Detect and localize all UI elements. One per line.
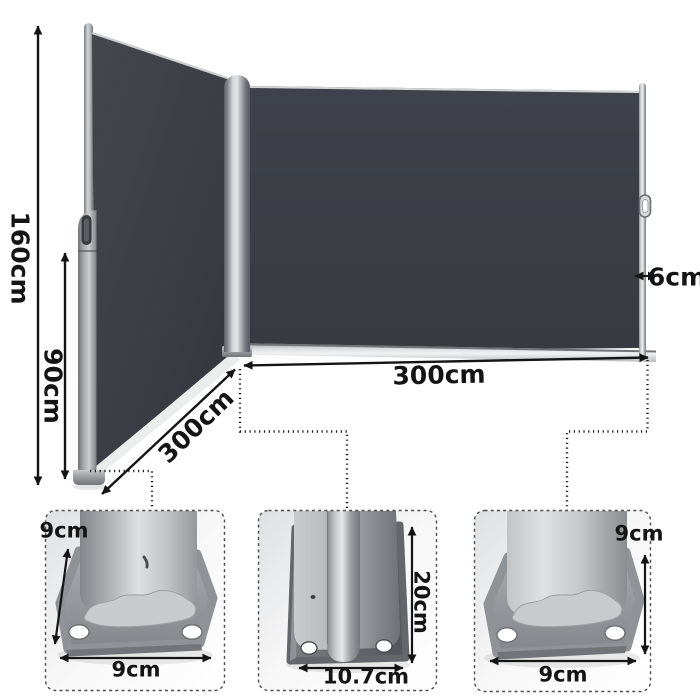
leader-right: [567, 360, 648, 509]
center-base-hole: [301, 642, 317, 654]
right-awning-panel: [250, 86, 639, 352]
retracted-height-label: 90cm: [41, 348, 66, 424]
right-base-height-label: 9cm: [615, 524, 664, 545]
awning-illustration: [73, 23, 656, 490]
awning-dimension-figure: 160cm 90cm 300cm 300cm 6cm 9cm 9cm 20cm …: [0, 0, 700, 700]
left-base-hole: [69, 625, 89, 639]
center-base-width-label: 10.7cm: [323, 667, 409, 688]
left-pull-rod: [84, 23, 93, 216]
left-cassette-pole: [78, 250, 97, 473]
right-pole: [639, 83, 646, 358]
right-panel-length-label: 300cm: [392, 362, 486, 389]
total-height-label: 160cm: [8, 211, 33, 304]
right-pull-handle-hole: [643, 200, 649, 213]
center-pole: [224, 75, 250, 352]
diagram-canvas: [0, 0, 700, 700]
leader-center: [240, 369, 347, 509]
pole-width-label: 6cm: [648, 265, 700, 290]
left-base-depth-label: 9cm: [40, 521, 89, 542]
center-base-height-label: 20cm: [411, 570, 432, 634]
left-foot: [73, 470, 105, 485]
center-base-ridge: [327, 511, 360, 662]
left-handle-grip: [84, 219, 89, 242]
right-base-hole: [605, 626, 625, 640]
left-base-hole: [182, 625, 202, 639]
center-base-hole: [376, 640, 392, 652]
right-base-width-label: 9cm: [539, 665, 588, 686]
right-base-hole: [497, 628, 517, 642]
left-base-width-label: 9cm: [112, 660, 161, 681]
